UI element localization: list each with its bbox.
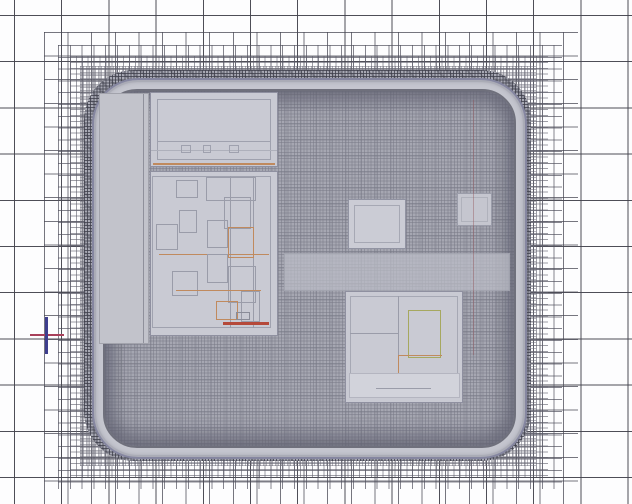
block-detail xyxy=(398,355,442,356)
block-detail xyxy=(179,210,197,233)
origin-y-axis-line xyxy=(45,317,48,354)
component-block-right-small-block[interactable] xyxy=(457,193,492,226)
block-detail xyxy=(354,205,400,243)
block-detail xyxy=(349,373,460,398)
component-block-top-block[interactable] xyxy=(150,92,278,167)
block-detail xyxy=(157,141,271,142)
block-detail xyxy=(203,145,211,153)
block-detail xyxy=(224,197,251,229)
block-detail xyxy=(153,163,275,165)
component-block-bottom-right-block[interactable] xyxy=(345,291,463,403)
component-block-center-square-block[interactable] xyxy=(348,199,406,249)
component-block-faint-red-trace[interactable] xyxy=(473,100,474,355)
block-detail xyxy=(143,94,144,343)
block-detail xyxy=(176,180,198,198)
block-detail xyxy=(156,224,178,250)
block-detail xyxy=(181,145,191,153)
block-detail xyxy=(223,322,269,325)
block-detail xyxy=(461,197,488,222)
block-detail xyxy=(350,333,399,334)
block-detail xyxy=(207,254,228,283)
block-detail xyxy=(207,220,228,248)
block-detail xyxy=(151,150,277,151)
mesh-canvas[interactable] xyxy=(0,0,632,504)
component-block-left-tall-block[interactable] xyxy=(150,171,278,336)
block-detail xyxy=(172,271,198,296)
block-detail xyxy=(216,301,238,320)
block-detail xyxy=(236,312,250,320)
component-block-mid-light-band[interactable] xyxy=(284,253,510,291)
block-detail xyxy=(408,310,441,358)
component-block-left-margin-strip[interactable] xyxy=(99,93,149,344)
block-detail xyxy=(376,388,431,389)
block-detail xyxy=(229,145,239,153)
